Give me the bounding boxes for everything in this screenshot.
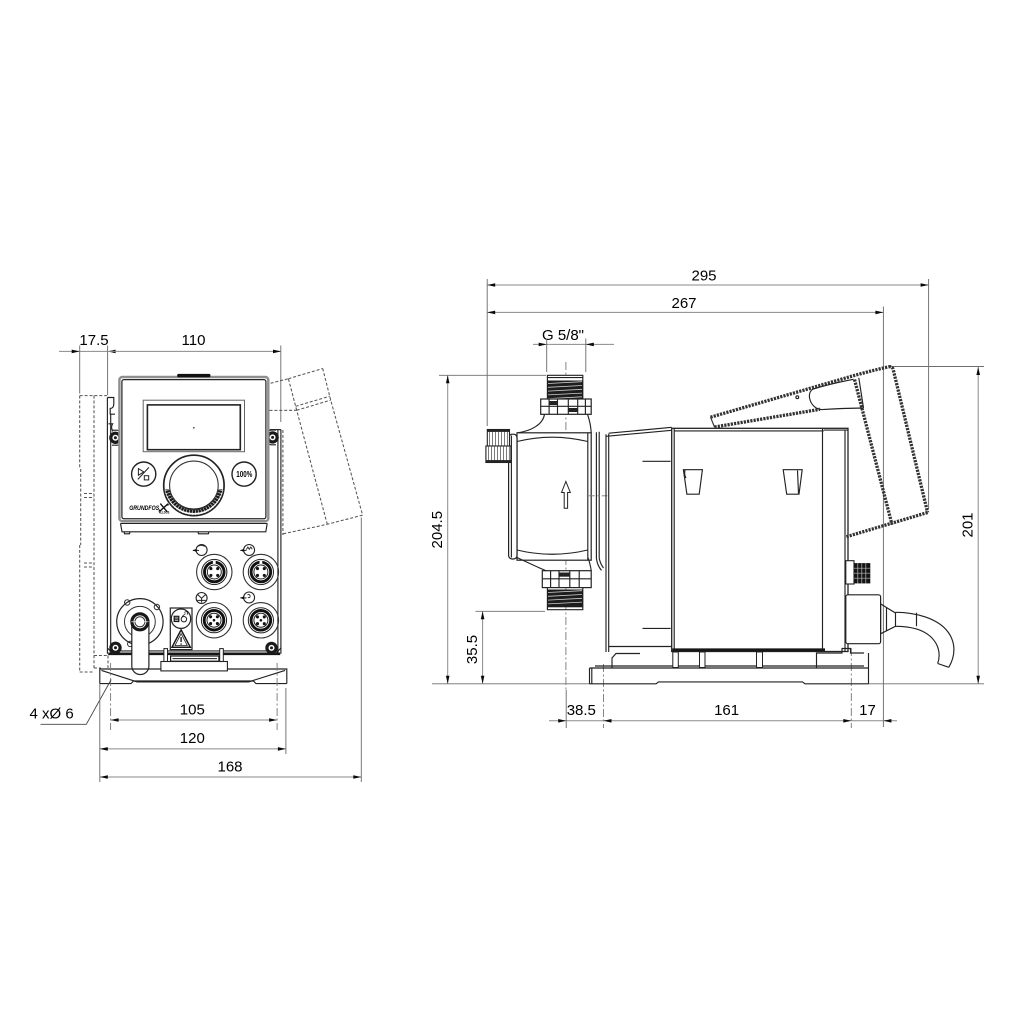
svg-text:267: 267 xyxy=(671,295,696,312)
svg-text:295: 295 xyxy=(691,268,716,285)
svg-text:G 5/8": G 5/8" xyxy=(542,327,584,344)
svg-text:ALLDOS: ALLDOS xyxy=(159,510,170,514)
svg-text:17: 17 xyxy=(859,702,876,719)
svg-text:161: 161 xyxy=(714,702,739,719)
svg-text:168: 168 xyxy=(217,758,242,775)
svg-text:100%: 100% xyxy=(236,470,252,479)
svg-text:105: 105 xyxy=(180,702,205,719)
svg-text:38.5: 38.5 xyxy=(567,702,596,719)
svg-text:35.5: 35.5 xyxy=(464,635,481,664)
svg-text:GRUNDFOS: GRUNDFOS xyxy=(129,505,160,512)
svg-text:4 xØ 6: 4 xØ 6 xyxy=(30,706,74,723)
svg-text:17.5: 17.5 xyxy=(79,332,108,349)
svg-text:110: 110 xyxy=(182,332,206,349)
svg-text:201: 201 xyxy=(959,512,976,537)
svg-text:204.5: 204.5 xyxy=(429,511,446,549)
svg-text:120: 120 xyxy=(180,730,205,747)
